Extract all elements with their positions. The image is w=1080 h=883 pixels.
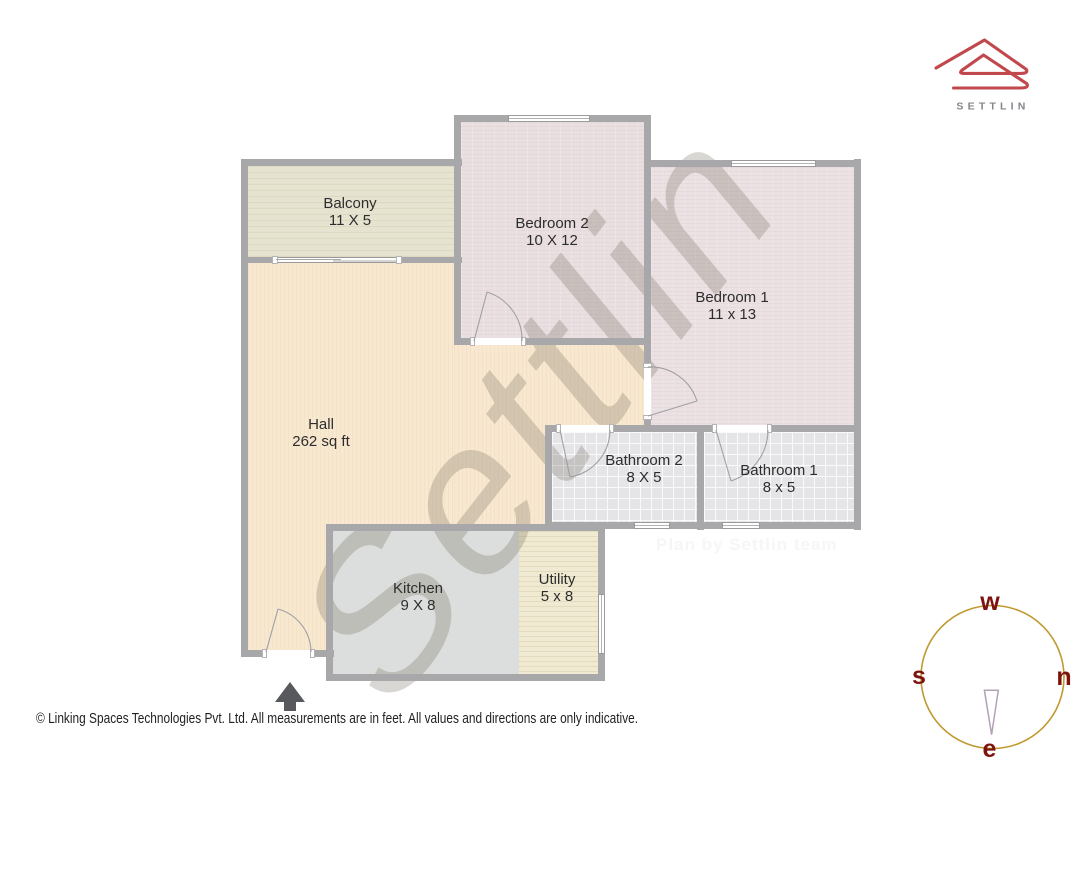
svg-text:SETTLIN: SETTLIN xyxy=(956,101,1029,113)
svg-text:w: w xyxy=(979,595,1000,616)
svg-text:e: e xyxy=(983,735,997,760)
svg-text:s: s xyxy=(912,662,926,690)
svg-text:n: n xyxy=(1056,663,1071,691)
